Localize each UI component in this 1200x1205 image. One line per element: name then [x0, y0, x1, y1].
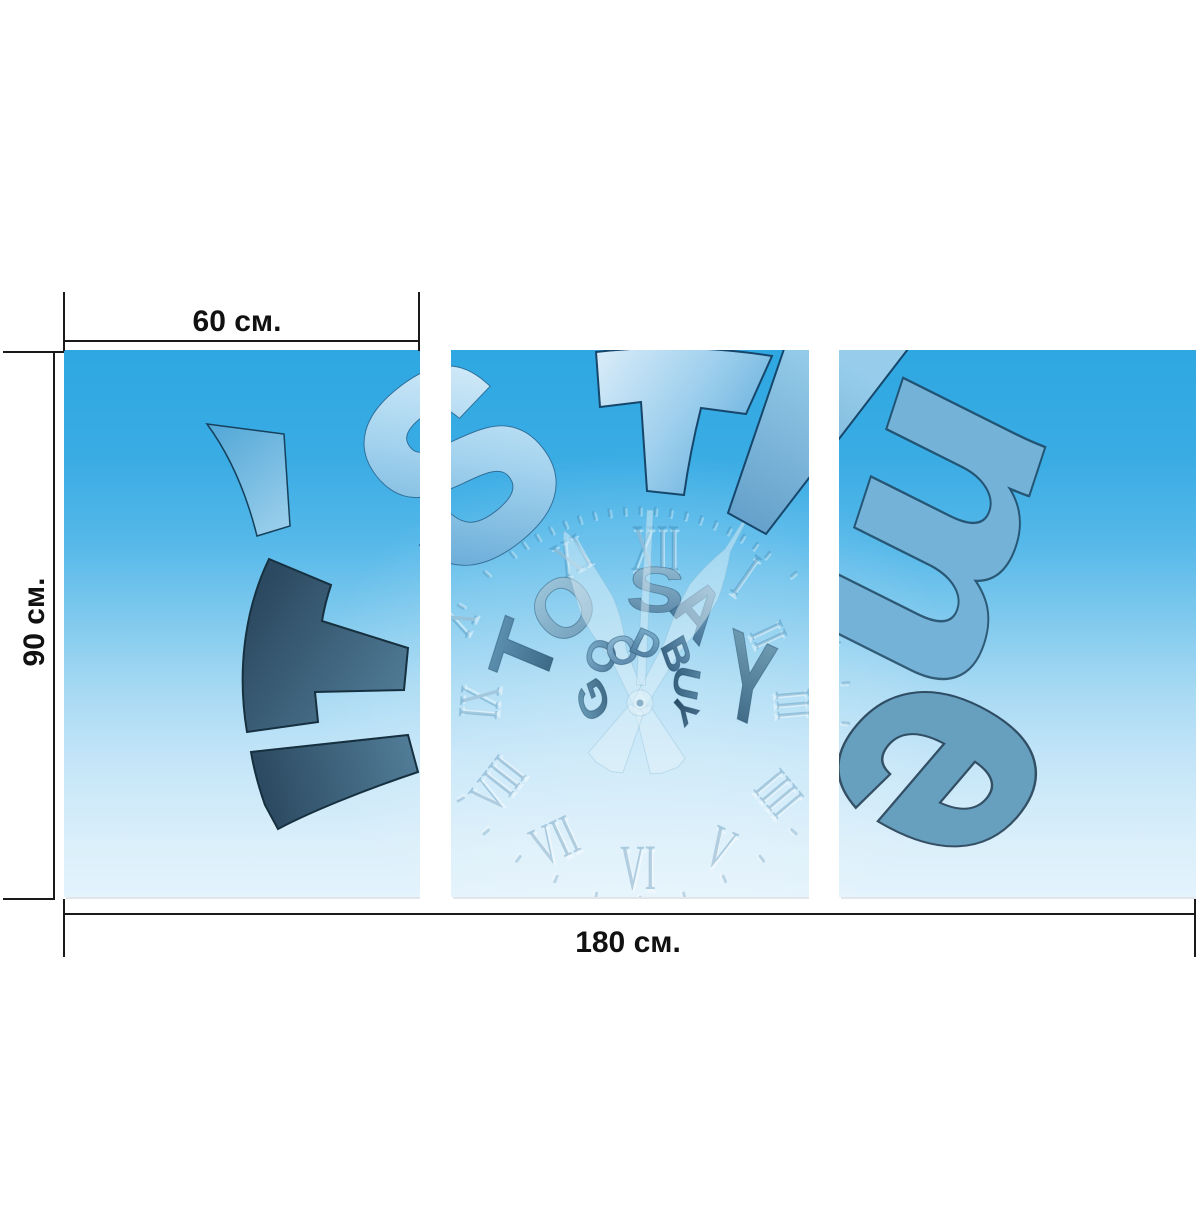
svg-text:VI: VI	[620, 833, 656, 904]
svg-text:180 см.: 180 см.	[575, 926, 681, 959]
svg-text:IX: IX	[446, 682, 513, 721]
svg-text:60 см.: 60 см.	[193, 305, 282, 338]
svg-text:90 см.: 90 см.	[18, 578, 51, 667]
